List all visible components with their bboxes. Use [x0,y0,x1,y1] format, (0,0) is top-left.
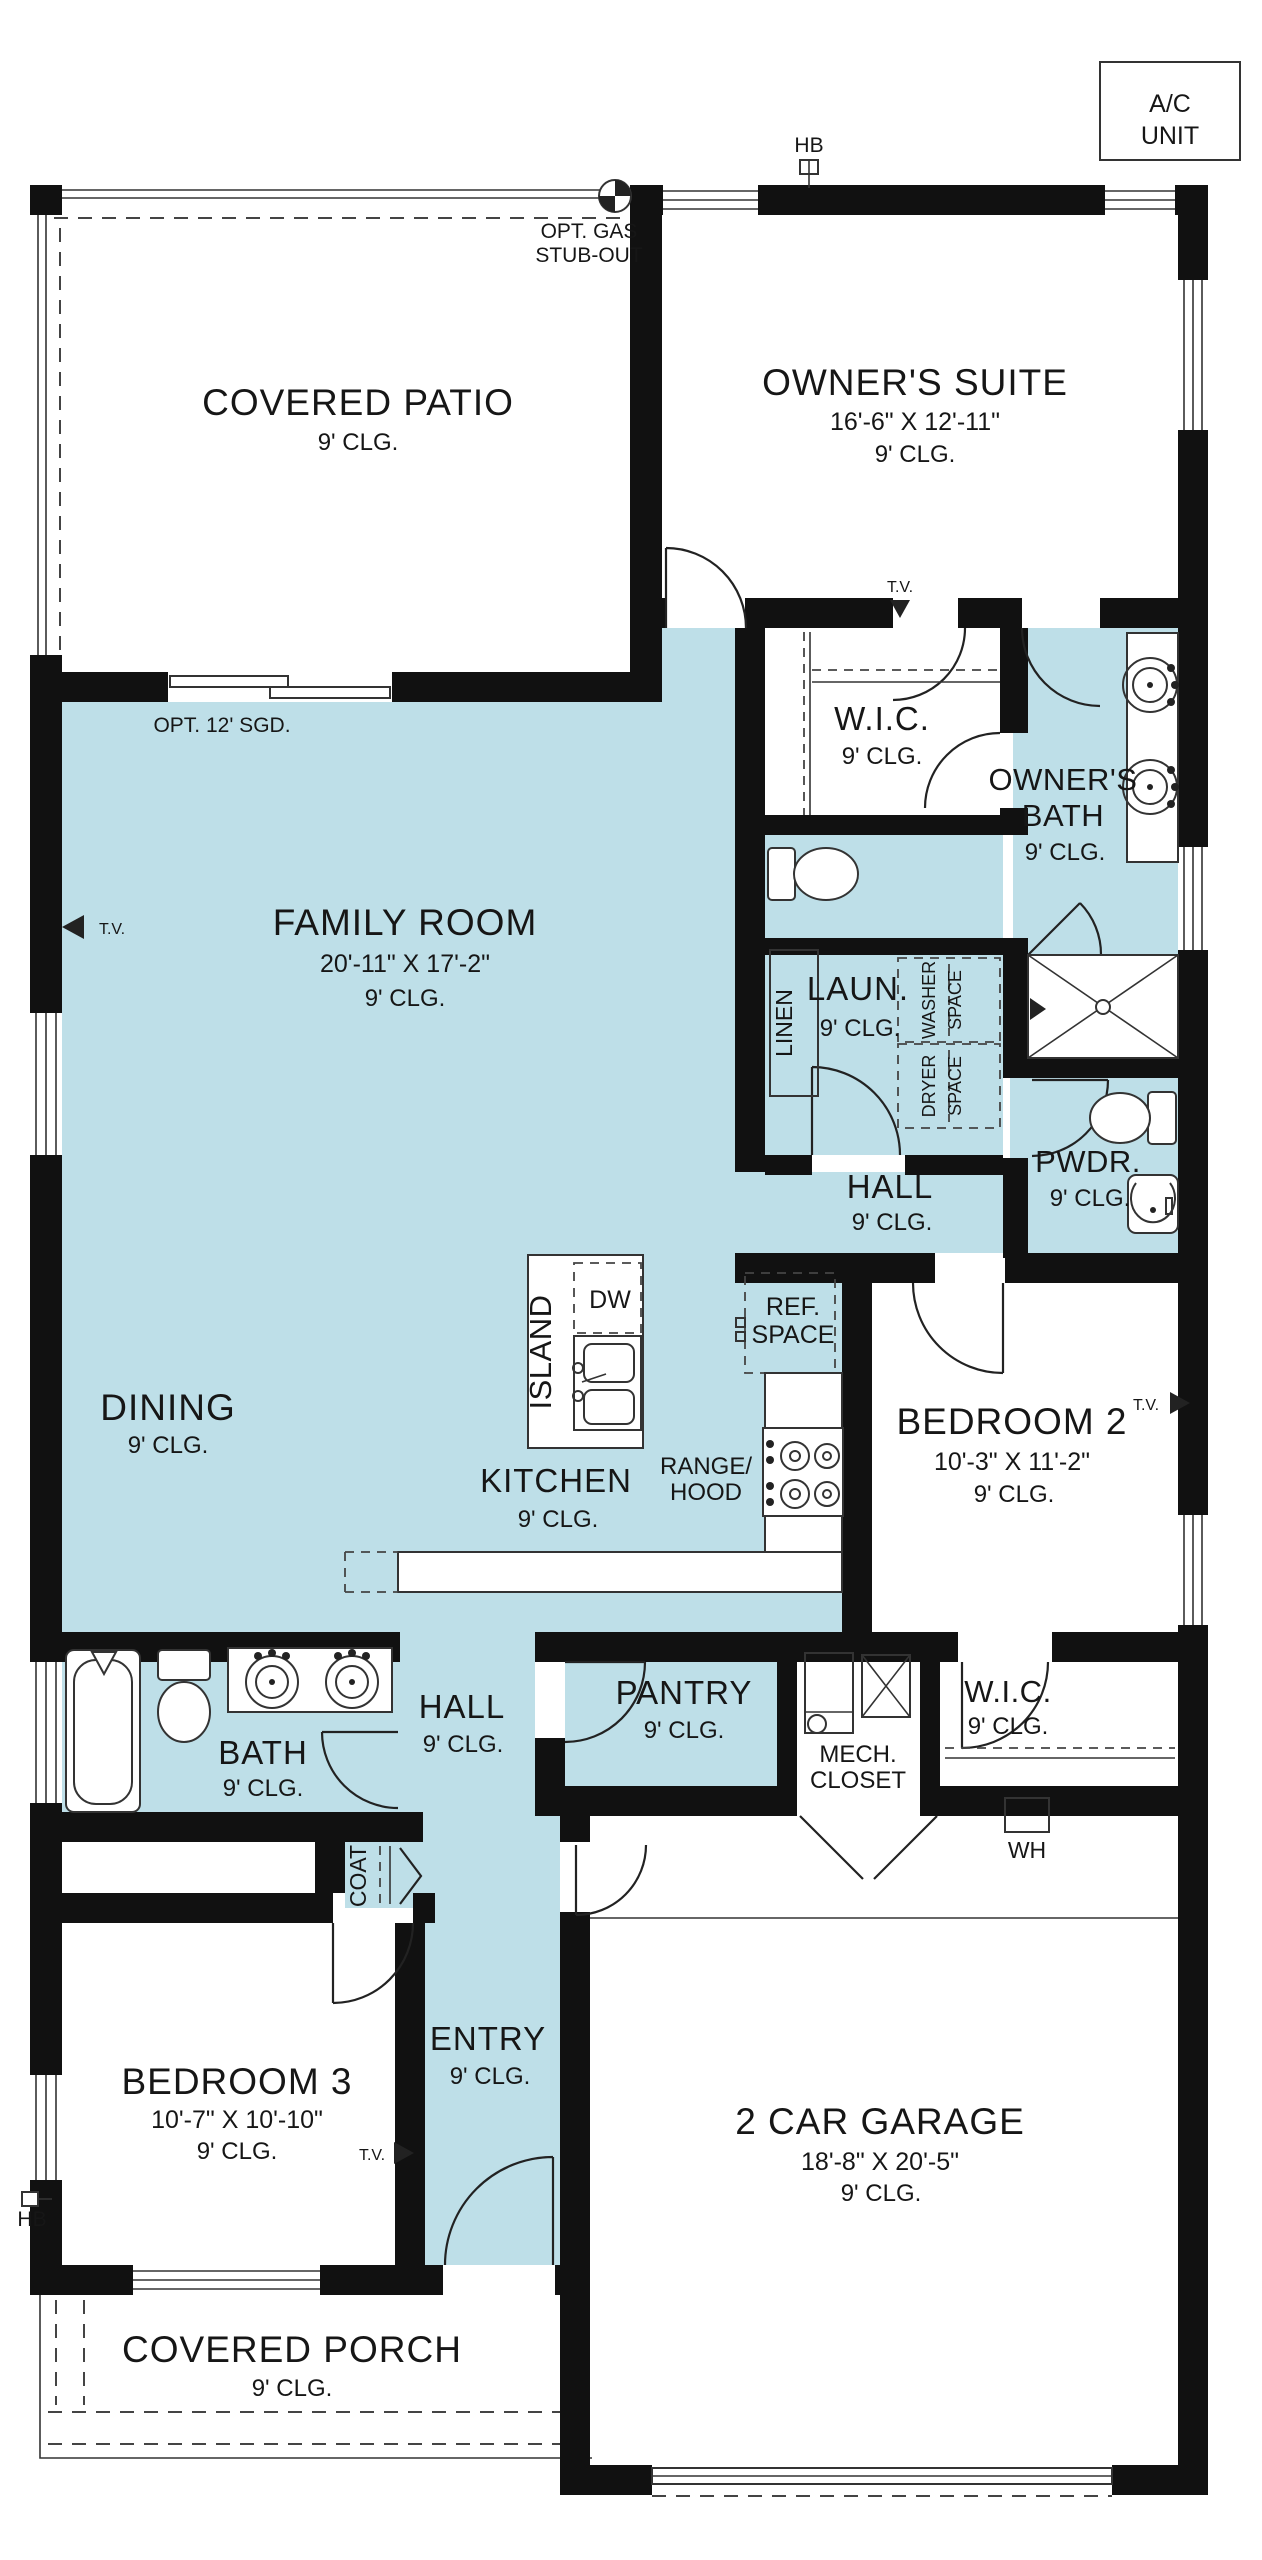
room-name: PWDR. [1035,1144,1141,1179]
room-name: FAMILY ROOM [273,902,538,943]
room-dim: 10'-3" X 11'-2" [934,1448,1090,1476]
ac-unit-label1: A/C [1149,90,1191,118]
wic-bedroom2-shelving [945,1748,1175,1758]
linen-label: LINEN [771,989,797,1057]
room-name: PANTRY [616,1674,753,1711]
room-ceiling: 9' CLG. [252,2375,333,2402]
washer-label2: SPACE [945,970,965,1030]
sliding-glass-door [168,672,392,702]
room-ceiling: 9' CLG. [841,2180,922,2207]
room-ceiling: 9' CLG. [450,2063,531,2090]
garage-details [590,1918,1178,2496]
room-name: ENTRY [430,2020,546,2057]
ac-unit-label2: UNIT [1141,122,1199,150]
door-wic-owners [893,628,965,700]
mech-equipment [805,1653,910,1733]
room-name: BEDROOM 3 [121,2061,352,2102]
room-name: LAUN. [807,970,909,1007]
room-name2: CLOSET [810,1767,906,1794]
room-label-wic-bedroom2: W.I.C. 9' CLG. [964,1674,1051,1740]
tv-label: T.V. [359,2147,385,2164]
room-label-mech-closet: MECH. CLOSET [810,1741,906,1794]
room-label-hall-lower: HALL 9' CLG. [419,1688,506,1758]
window [30,2075,62,2180]
room-dim: 10'-7" X 10'-10" [151,2106,323,2134]
room-label-covered-patio: COVERED PATIO 9' CLG. [202,382,514,456]
label-range-hood: RANGE/ HOOD [660,1453,752,1506]
dryer-label1: DRYER [919,1055,939,1118]
door-owners-suite [666,548,746,628]
room-label-bath: BATH 9' CLG. [218,1734,308,1802]
kitchen-island: ISLAND DW [523,1255,643,1448]
opt-sgd-label: OPT. 12' SGD. [153,714,290,737]
room-dim: 20'-11" X 17'-2" [320,950,490,978]
window [30,1013,62,1155]
tv-label: T.V. [887,579,913,596]
room-name: DINING [100,1387,236,1428]
room-dim: 16'-6" X 12'-11" [830,408,1000,436]
powder-sink [1128,1175,1178,1233]
opt-gas-stubout: OPT. GAS STUB-OUT [535,180,643,267]
room-name: 2 CAR GARAGE [735,2101,1025,2142]
room-label-covered-porch: COVERED PORCH 9' CLG. [122,2329,462,2402]
island-label: ISLAND [523,1295,558,1410]
room-name: OWNER'S SUITE [762,362,1068,403]
hose-bib-top: HB [794,134,823,188]
room-ceiling: 9' CLG. [974,1481,1055,1508]
room-ceiling: 9' CLG. [968,1713,1049,1740]
water-heater-label: WH [1008,1837,1046,1863]
room-label-powder: PWDR. 9' CLG. [1035,1144,1141,1212]
ref-label1: REF. [766,1293,820,1321]
room-ceiling: 9' CLG. [365,985,446,1012]
window [30,1662,62,1803]
window [663,185,758,215]
room-label-owners-suite: OWNER'S SUITE 16'-6" X 12'-11" 9' CLG. [762,362,1068,468]
room-name: W.I.C. [834,700,930,737]
room-name1: MECH. [819,1741,896,1768]
owners-bath-toilet [768,848,858,900]
washer-label1: WASHER [919,961,939,1039]
room-ceiling: 9' CLG. [223,1775,304,1802]
room-ceiling: 9' CLG. [518,1506,599,1533]
room-ceiling: 9' CLG. [644,1717,725,1744]
room-label-laundry: LAUN. 9' CLG. [807,970,909,1042]
window [1178,847,1208,950]
tv-label: T.V. [1133,1397,1159,1414]
owners-bath-vanity [1123,633,1179,862]
range [763,1428,843,1516]
room-label-wic-owners: W.I.C. 9' CLG. [834,700,930,770]
room-label-bedroom2: BEDROOM 2 10'-3" X 11'-2" 9' CLG. [896,1401,1127,1508]
room-name1: OWNER'S [989,762,1138,797]
door-mech-double [800,1816,937,1879]
room-label-bedroom3: BEDROOM 3 10'-7" X 10'-10" 9' CLG. [121,2061,352,2165]
room-ceiling: 9' CLG. [1050,1185,1131,1212]
opt-gas-label1: OPT. GAS [541,220,638,243]
owners-shower [1028,955,1178,1058]
room-ceiling: 9' CLG. [128,1432,209,1459]
floor-plan: A/C UNIT HB HB OPT. GAS STUB-OUT OPT. 12… [0,0,1262,2560]
room-name: BEDROOM 2 [896,1401,1127,1442]
dryer-label2: SPACE [945,1056,965,1116]
hose-bib-label: HB [17,2208,46,2231]
room-label-garage: 2 CAR GARAGE 18'-8" X 20'-5" 9' CLG. [735,2101,1025,2207]
bath-vanity [228,1648,392,1712]
bath-toilet [158,1650,210,1742]
room-ceiling: 9' CLG. [1025,839,1106,866]
coat-label: COAT [345,1845,371,1907]
room-ceiling: 9' CLG. [318,429,399,456]
room-name: W.I.C. [964,1674,1051,1709]
room-name: HALL [419,1688,506,1725]
room-ceiling: 9' CLG. [197,2138,278,2165]
door-entry-garage [576,1845,646,1915]
room-ceiling: 9' CLG. [820,1015,901,1042]
dishwasher-label: DW [589,1286,631,1314]
room-name: BATH [218,1734,308,1771]
bath-tub [66,1650,140,1812]
room-ceiling: 9' CLG. [423,1731,504,1758]
room-name: HALL [847,1168,934,1205]
room-ceiling: 9' CLG. [842,743,923,770]
window [133,2265,320,2295]
range-label1: RANGE/ [660,1453,752,1480]
hose-bib-label: HB [794,134,823,157]
door-bedroom2 [913,1283,1003,1373]
room-name: COVERED PATIO [202,382,514,423]
room-ceiling: 9' CLG. [852,1209,933,1236]
window [1178,1515,1208,1625]
room-name: KITCHEN [480,1462,632,1499]
range-label2: HOOD [670,1479,742,1506]
room-name: COVERED PORCH [122,2329,462,2370]
tv-label: T.V. [99,921,125,938]
room-label-hall-upper: HALL 9' CLG. [847,1168,934,1236]
room-dim: 18'-8" X 20'-5" [801,2148,959,2176]
ac-unit: A/C UNIT [1100,62,1240,160]
opt-gas-label2: STUB-OUT [535,244,643,267]
window [1105,185,1175,215]
room-name2: BATH [1022,798,1104,833]
room-ceiling: 9' CLG. [875,441,956,468]
window [1178,280,1208,430]
floor-plan-canvas: A/C UNIT HB HB OPT. GAS STUB-OUT OPT. 12… [0,0,1262,2560]
ref-label2: SPACE [752,1321,835,1349]
powder-toilet [1090,1092,1176,1144]
